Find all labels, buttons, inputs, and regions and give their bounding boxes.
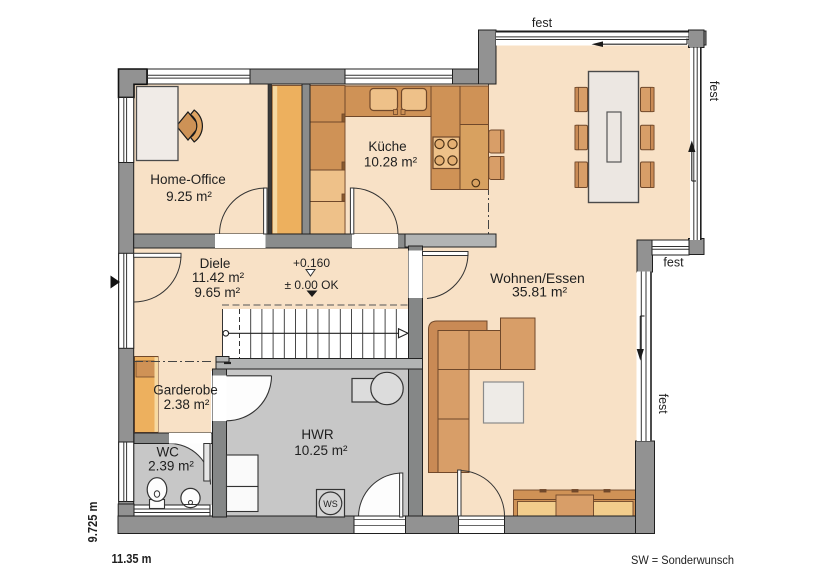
svg-text:WC: WC bbox=[156, 445, 179, 460]
svg-text:SW = Sonderwunsch: SW = Sonderwunsch bbox=[631, 553, 734, 567]
svg-text:± 0.00 OK: ± 0.00 OK bbox=[285, 278, 339, 292]
svg-text:10.28 m²: 10.28 m² bbox=[364, 155, 418, 170]
svg-text:WS: WS bbox=[323, 499, 338, 509]
svg-text:fest: fest bbox=[663, 256, 684, 270]
svg-text:HWR: HWR bbox=[301, 427, 333, 442]
svg-text:+0.160: +0.160 bbox=[293, 256, 330, 270]
svg-text:2.39 m²: 2.39 m² bbox=[148, 459, 194, 474]
svg-text:Garderobe: Garderobe bbox=[153, 383, 218, 398]
svg-text:9.725 m: 9.725 m bbox=[85, 502, 100, 543]
svg-text:fest: fest bbox=[707, 81, 721, 102]
svg-text:10.25 m²: 10.25 m² bbox=[294, 443, 348, 458]
svg-text:35.81 m²: 35.81 m² bbox=[512, 284, 568, 300]
svg-text:11.35 m: 11.35 m bbox=[112, 551, 152, 566]
svg-text:Küche: Küche bbox=[368, 139, 406, 154]
svg-text:9.65 m²: 9.65 m² bbox=[194, 285, 240, 300]
svg-text:11.42 m²: 11.42 m² bbox=[192, 270, 245, 285]
svg-text:Diele: Diele bbox=[200, 256, 231, 271]
svg-text:fest: fest bbox=[656, 394, 670, 415]
svg-text:fest: fest bbox=[532, 16, 553, 30]
svg-text:9.25 m²: 9.25 m² bbox=[166, 189, 212, 204]
svg-text:2.38 m²: 2.38 m² bbox=[164, 397, 210, 412]
svg-text:Home-Office: Home-Office bbox=[150, 172, 226, 187]
